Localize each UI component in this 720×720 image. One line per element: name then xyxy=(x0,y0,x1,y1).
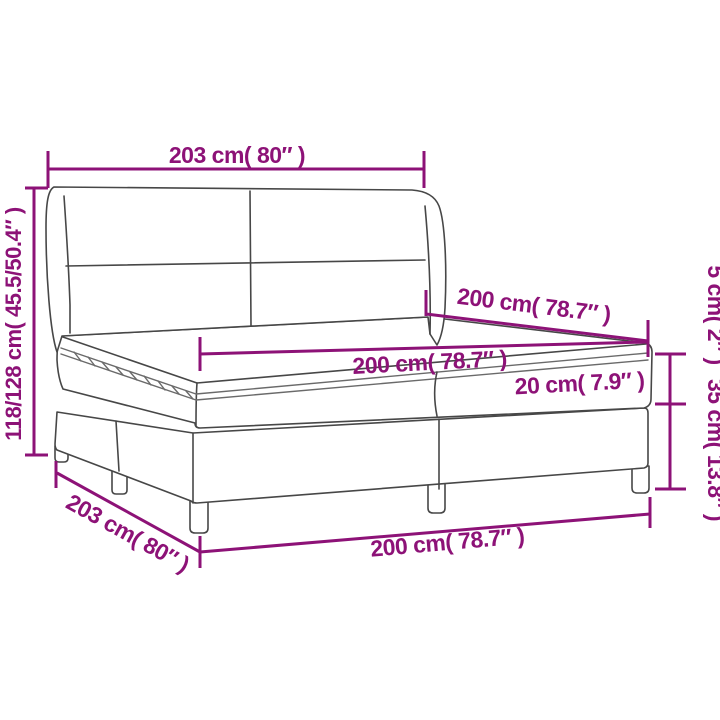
bed-base-box xyxy=(55,408,648,503)
dim-label-base-width: 200 cm( 78.7″ ) xyxy=(369,522,525,561)
dim-label-headboard-width: 203 cm( 80″ ) xyxy=(169,142,305,168)
headboard-center-mullion xyxy=(250,191,251,326)
leg-front-mid xyxy=(428,481,445,513)
bed-dimension-diagram: 203 cm( 80″ ) 118/128 cm( 45.5/50.4″ ) 2… xyxy=(0,0,720,720)
diagram-canvas: 203 cm( 80″ ) 118/128 cm( 45.5/50.4″ ) 2… xyxy=(0,0,720,720)
dim-label-base-height: 35 cm( 13.8″ ) xyxy=(703,379,720,521)
base-outline xyxy=(55,408,648,503)
leg-front-right xyxy=(632,466,649,493)
dim-label-base-depth: 203 cm( 80″ ) xyxy=(62,489,194,578)
bed-drawing xyxy=(46,187,652,533)
dim-label-topper-height: 5 cm( 2″ ) xyxy=(703,265,720,364)
dim-line-right-heights xyxy=(655,354,686,489)
dim-line-total-height xyxy=(25,188,48,455)
dim-label-total-height: 118/128 cm( 45.5/50.4″ ) xyxy=(1,207,26,441)
